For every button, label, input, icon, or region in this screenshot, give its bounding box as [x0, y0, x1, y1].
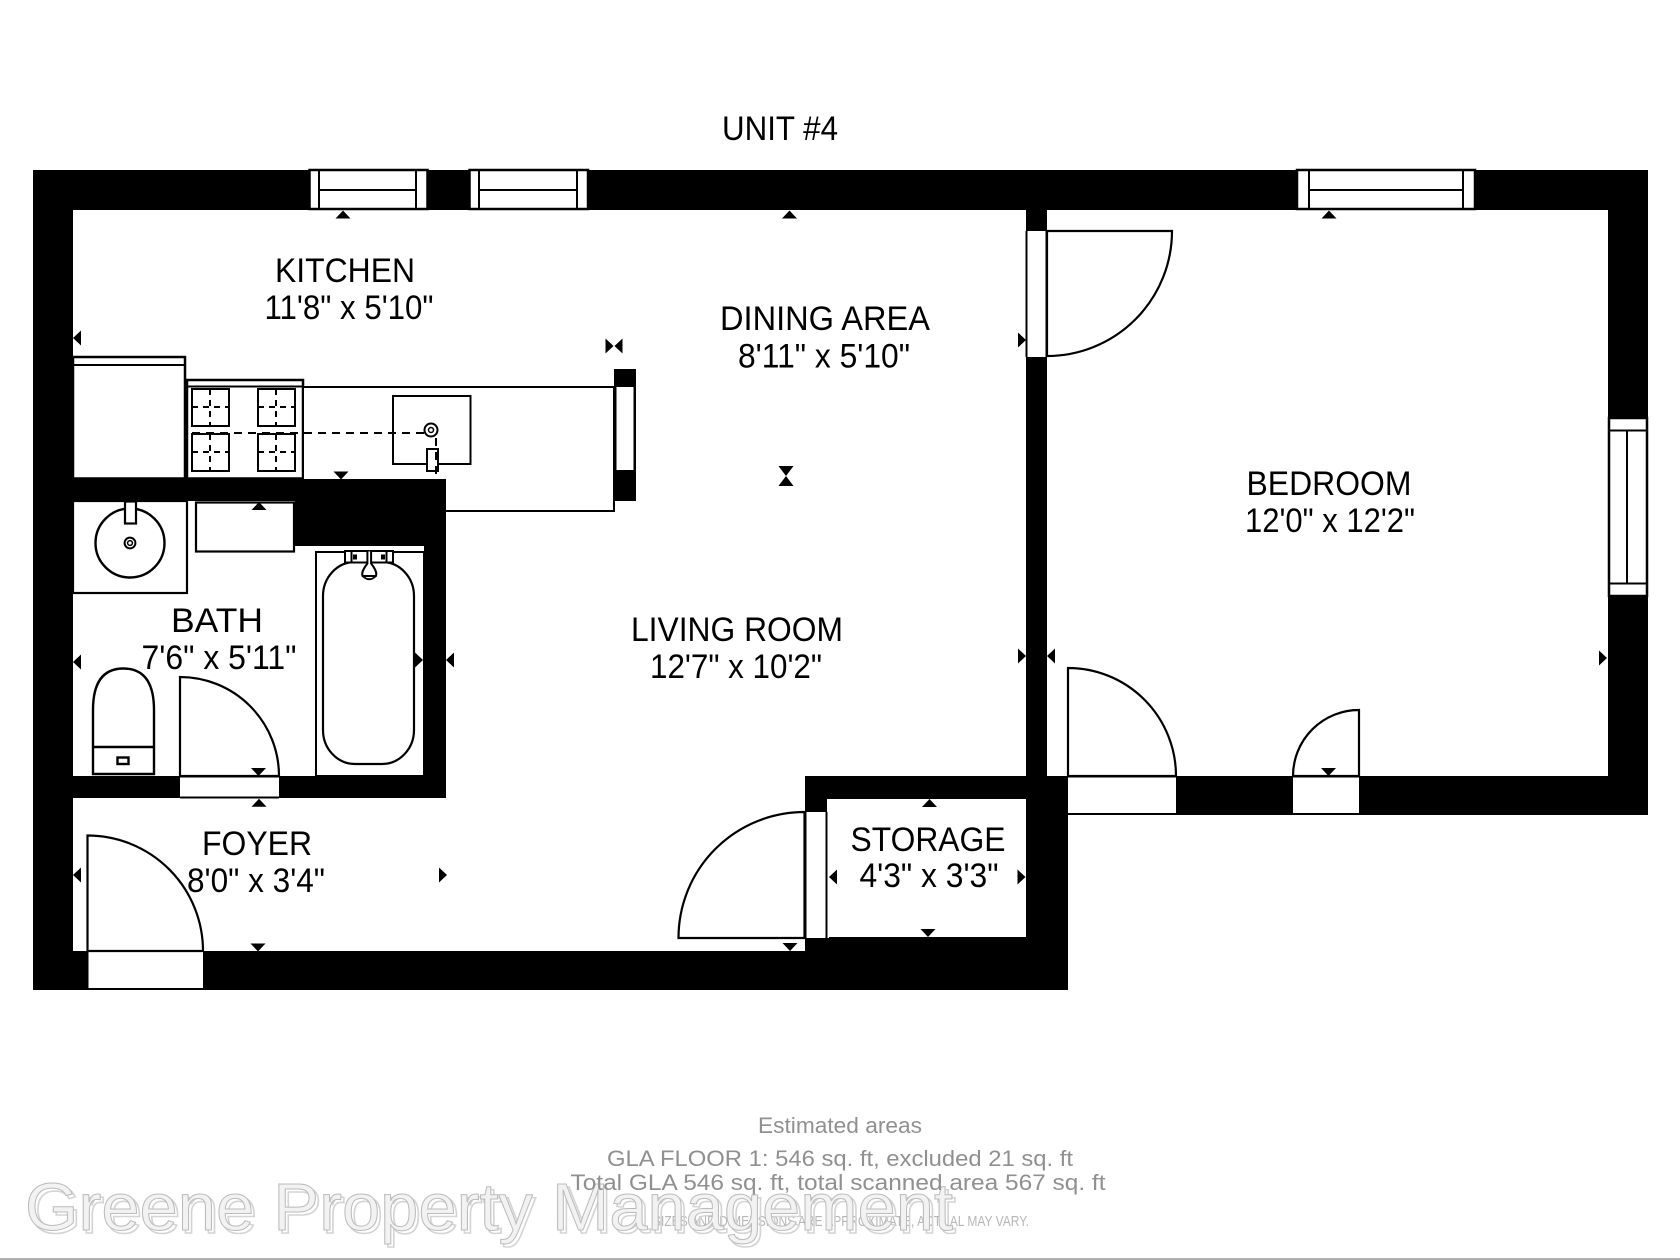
svg-text:FOYER: FOYER — [202, 825, 312, 863]
svg-text:GLA FLOOR 1: 546 sq. ft, exclu: GLA FLOOR 1: 546 sq. ft, excluded 21 sq.… — [607, 1146, 1073, 1171]
svg-text:DINING AREA: DINING AREA — [720, 300, 930, 338]
svg-text:Total GLA 546 sq. ft, total sc: Total GLA 546 sq. ft, total scanned area… — [571, 1170, 1106, 1195]
svg-text:4'3" x 3'3": 4'3" x 3'3" — [860, 857, 999, 895]
svg-text:LIVING ROOM: LIVING ROOM — [631, 611, 843, 649]
svg-text:8'0" x 3'4": 8'0" x 3'4" — [187, 862, 325, 900]
svg-text:UNIT #4: UNIT #4 — [722, 110, 838, 148]
svg-text:8'11" x 5'10": 8'11" x 5'10" — [738, 338, 910, 376]
svg-text:BEDROOM: BEDROOM — [1247, 465, 1412, 503]
svg-text:12'7" x 10'2": 12'7" x 10'2" — [650, 648, 822, 686]
svg-text:7'6" x 5'11": 7'6" x 5'11" — [142, 639, 297, 677]
svg-text:11'8" x 5'10": 11'8" x 5'10" — [265, 289, 434, 327]
svg-text:BATH: BATH — [171, 602, 263, 640]
svg-text:STORAGE: STORAGE — [851, 821, 1006, 859]
svg-text:Estimated areas: Estimated areas — [758, 1113, 922, 1138]
svg-text:12'0" x 12'2": 12'0" x 12'2" — [1245, 502, 1415, 540]
svg-text:KITCHEN: KITCHEN — [275, 252, 415, 290]
